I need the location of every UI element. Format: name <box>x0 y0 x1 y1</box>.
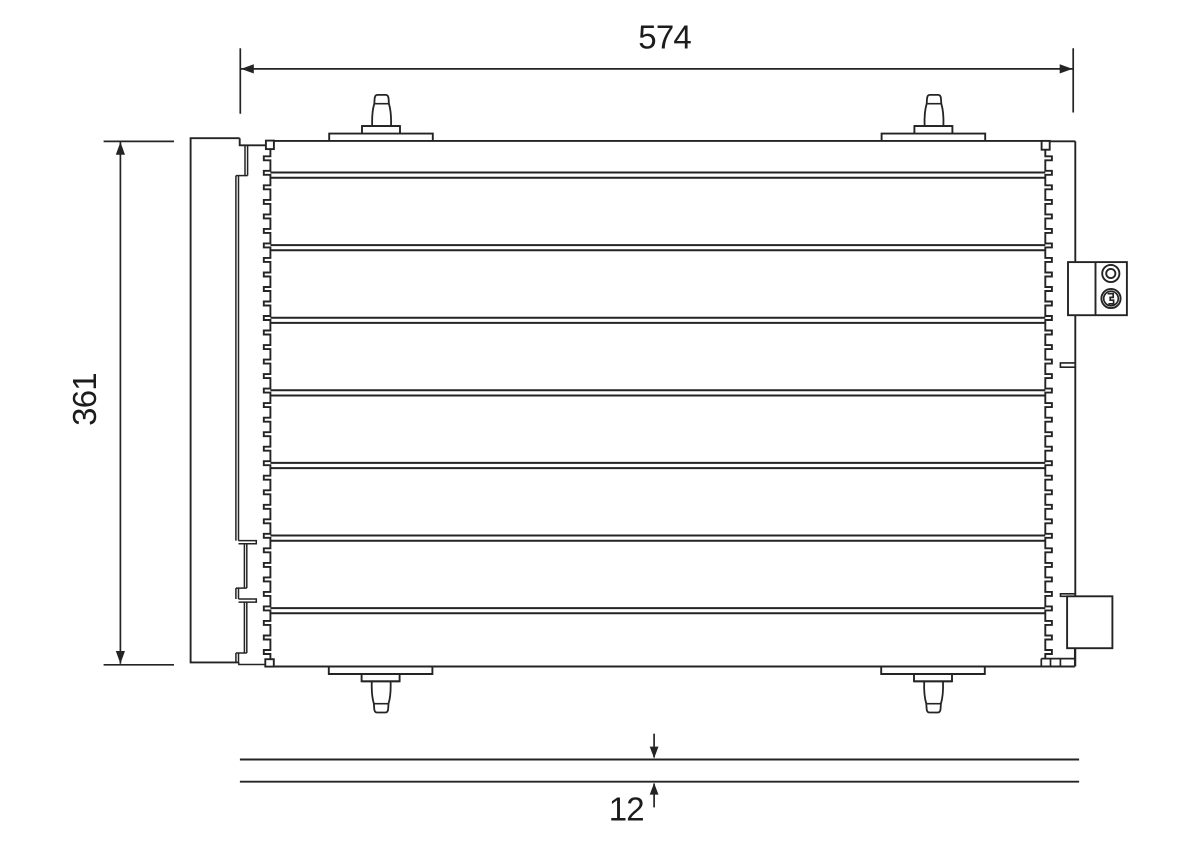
svg-text:361: 361 <box>66 373 103 426</box>
svg-text:12: 12 <box>609 790 644 827</box>
svg-text:574: 574 <box>638 18 691 55</box>
